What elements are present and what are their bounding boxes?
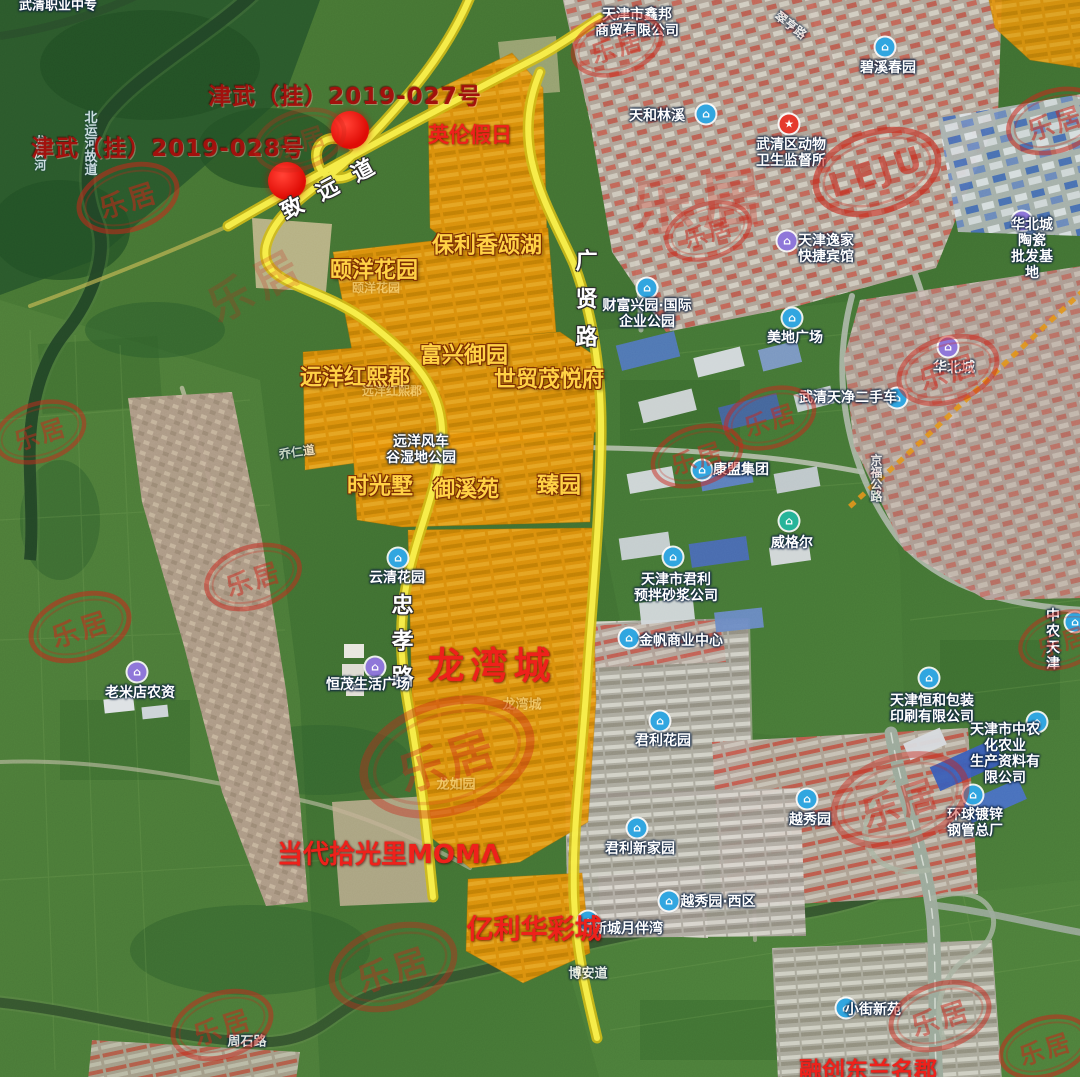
satellite-terrain (0, 0, 1080, 1077)
satellite-map[interactable]: ⌂⌂⌂⌂⌂⌂⌂⌂⌂⌂⌂⌂⌂⌂⌂⌂⌂⌂⌂⌂⌂★⌂⌂⌂⌂ 英伦假日保利香颂湖颐洋花园… (0, 0, 1080, 1077)
noise-overlay (0, 0, 1080, 1077)
